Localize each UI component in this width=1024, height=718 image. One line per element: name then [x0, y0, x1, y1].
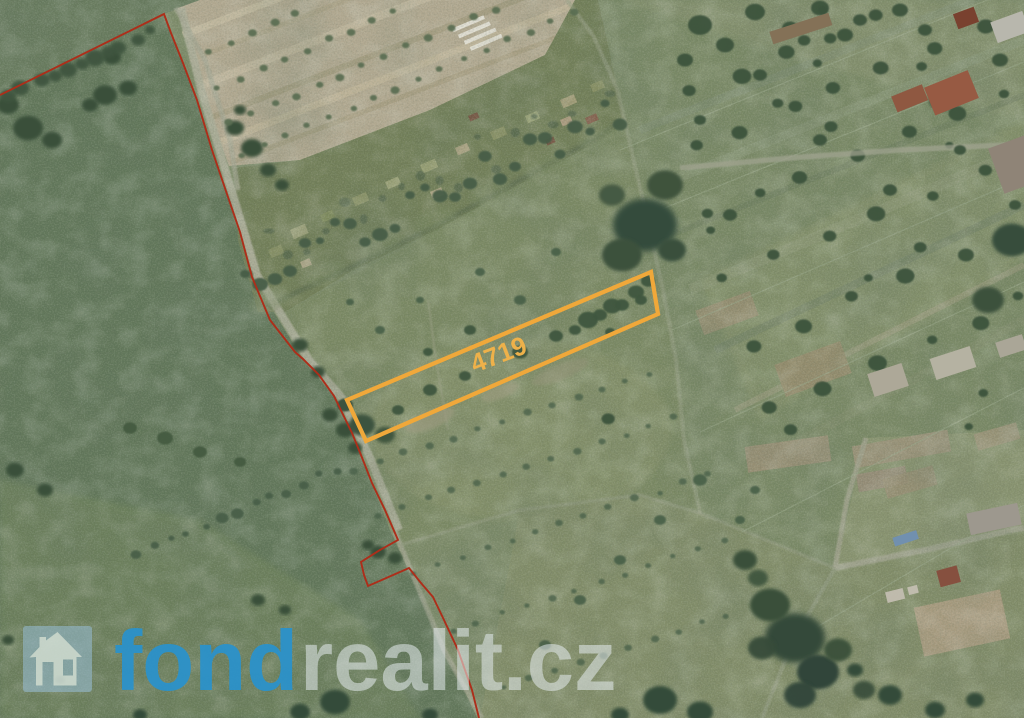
- svg-text:fond: fond: [114, 614, 298, 709]
- svg-text:realit.cz: realit.cz: [300, 614, 617, 709]
